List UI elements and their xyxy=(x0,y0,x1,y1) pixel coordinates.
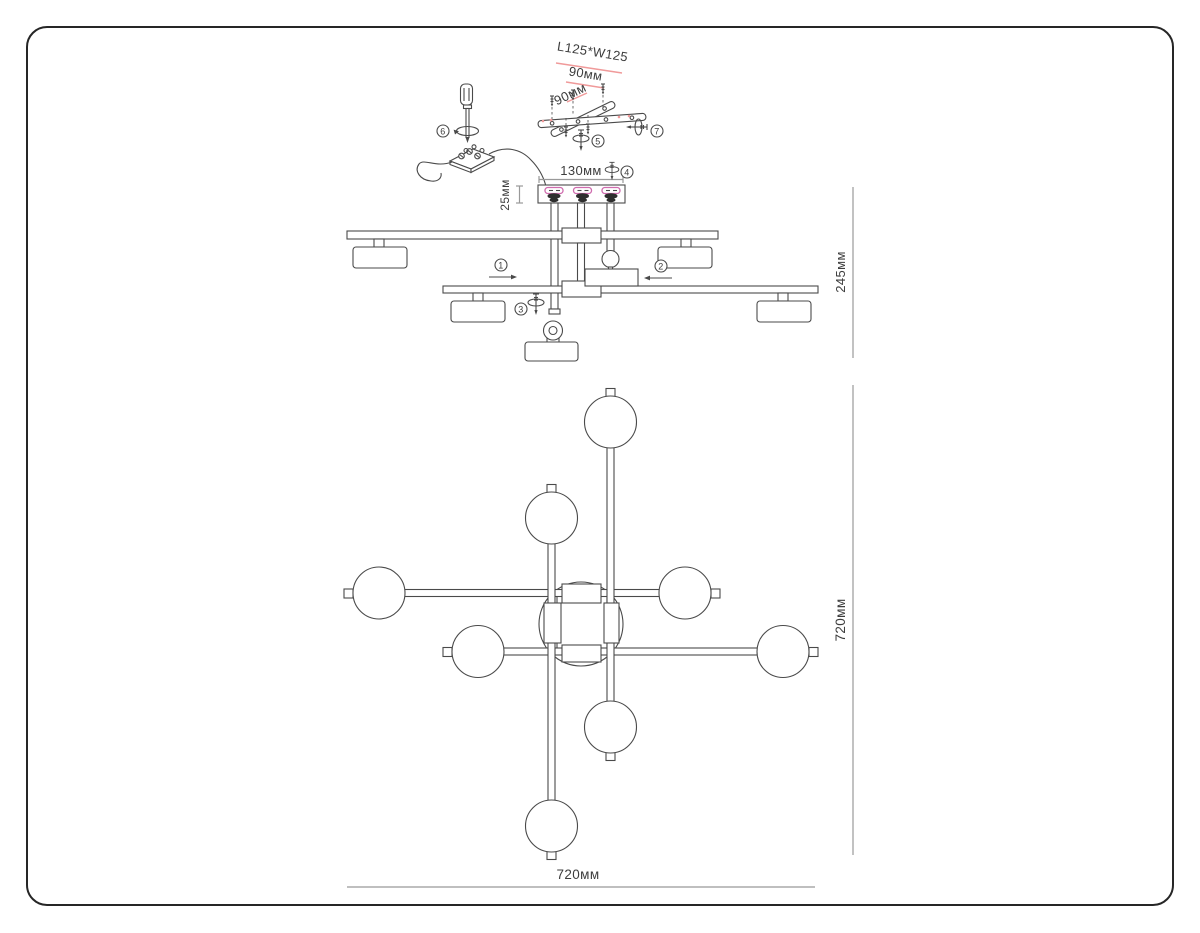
arm-rod-bottom xyxy=(478,648,783,655)
rod-sleeve xyxy=(544,603,561,643)
slide-arrow-right xyxy=(511,275,517,280)
lamp-shade xyxy=(353,247,407,268)
canopy-height-label: 25мм xyxy=(498,179,512,210)
shade-hanger xyxy=(681,239,691,247)
callout-number: 7 xyxy=(654,126,659,136)
assembly-diagram: L125*W125 90мм 90мм xyxy=(347,39,853,361)
ball-lamp xyxy=(353,567,405,619)
callout-1: 1 xyxy=(489,259,517,279)
upper-arm-bar xyxy=(347,231,718,239)
callout-5: 5 xyxy=(592,135,604,147)
callout-3: 3 xyxy=(515,303,527,315)
terminal-block xyxy=(450,145,494,173)
border-frame xyxy=(27,27,1173,905)
rod-end-nub xyxy=(606,389,615,397)
ball-lamp xyxy=(585,396,637,448)
rod-end-cap xyxy=(549,309,560,314)
callout-6: 6 xyxy=(437,125,449,137)
arm-rod-right xyxy=(607,422,614,727)
lower-arm-bar xyxy=(443,286,818,293)
rod-end-nub xyxy=(547,852,556,860)
rod-end-nub xyxy=(809,648,818,657)
bracket-spacing-label-a: 90мм xyxy=(568,63,604,83)
height-dimension: 245мм xyxy=(833,187,853,358)
callout-number: 6 xyxy=(440,126,445,136)
rod-sleeve xyxy=(562,645,601,662)
wiring-detail: 6 xyxy=(417,84,545,185)
plan-height-label: 720мм xyxy=(833,598,848,641)
ball-lamp xyxy=(757,626,809,678)
screw-rotate-icon xyxy=(605,162,619,180)
lamp-shade xyxy=(757,301,811,322)
shade-hanger xyxy=(374,239,384,247)
callout-7: 7 xyxy=(651,125,663,137)
technical-drawing: L125*W125 90мм 90мм xyxy=(0,0,1200,933)
callout-number: 1 xyxy=(498,260,503,270)
driver-box xyxy=(585,269,638,286)
stem-rod-right xyxy=(607,203,614,251)
mounting-bracket-detail: L125*W125 90мм 90мм xyxy=(538,39,663,151)
rod-end-nub xyxy=(344,589,353,598)
upper-arm-connector xyxy=(562,228,601,243)
callout-number: 4 xyxy=(624,167,629,177)
screw-rotate-icon xyxy=(573,130,589,151)
arm-rod-top xyxy=(379,590,685,597)
stem-rod-middle-lower xyxy=(578,243,585,282)
rod-end-nub xyxy=(711,589,720,598)
ball-lamp xyxy=(659,567,711,619)
fixture-wire xyxy=(489,149,546,184)
rod-lock-collars xyxy=(548,193,618,202)
screwdriver-icon xyxy=(454,84,479,143)
screw-rotate-icon xyxy=(528,294,544,315)
rod-end-nub xyxy=(606,753,615,761)
ball-lamp xyxy=(526,800,578,852)
instruction-sheet: L125*W125 90мм 90мм xyxy=(0,0,1200,933)
lamp-shade xyxy=(451,301,505,322)
rod-sleeve xyxy=(562,584,601,603)
fixture-side-view: 1 2 3 245мм xyxy=(347,187,853,361)
arm-rod-left xyxy=(548,518,555,826)
ball-joint xyxy=(602,251,619,268)
bracket-spacing-label-b: 90мм xyxy=(551,80,588,108)
canopy-height-dim xyxy=(516,186,523,203)
screw-icon xyxy=(601,84,605,95)
ball-lamp-detail xyxy=(525,321,578,361)
rod-sleeve xyxy=(604,603,619,643)
lamp-body xyxy=(525,342,578,361)
canopy-square xyxy=(557,596,607,651)
rod-end-nub xyxy=(443,648,452,657)
rod-end-nub xyxy=(547,485,556,493)
plan-view: 720мм 720мм xyxy=(344,385,853,887)
fixture-height-label: 245мм xyxy=(833,251,848,293)
ball-lamp xyxy=(526,492,578,544)
shade-hanger xyxy=(473,293,483,301)
slide-arrow-left xyxy=(644,276,650,281)
stem-rod-middle xyxy=(578,203,585,229)
supply-wire xyxy=(417,162,452,181)
ball-lamp xyxy=(585,701,637,753)
plan-height-dimension: 720мм xyxy=(833,385,853,855)
screw-icon xyxy=(586,124,590,135)
ball-lamp xyxy=(452,626,504,678)
plan-width-label: 720мм xyxy=(556,867,599,882)
callout-number: 5 xyxy=(595,136,600,146)
callout-4: 4 xyxy=(621,166,633,178)
callout-number: 3 xyxy=(518,304,523,314)
callout-number: 2 xyxy=(658,261,663,271)
canopy-width-label: 130мм xyxy=(560,163,602,178)
plan-width-dimension: 720мм xyxy=(347,867,815,887)
bracket-size-label: L125*W125 xyxy=(556,39,629,65)
mounting-ring xyxy=(544,321,563,340)
shade-hanger xyxy=(778,293,788,301)
